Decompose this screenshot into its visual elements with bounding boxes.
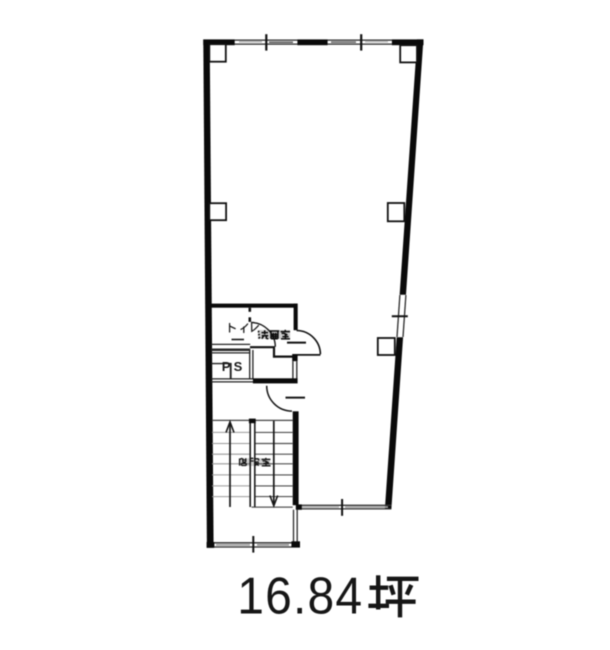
- svg-text:PS: PS: [222, 359, 246, 374]
- svg-text:16.84: 16.84: [237, 567, 363, 625]
